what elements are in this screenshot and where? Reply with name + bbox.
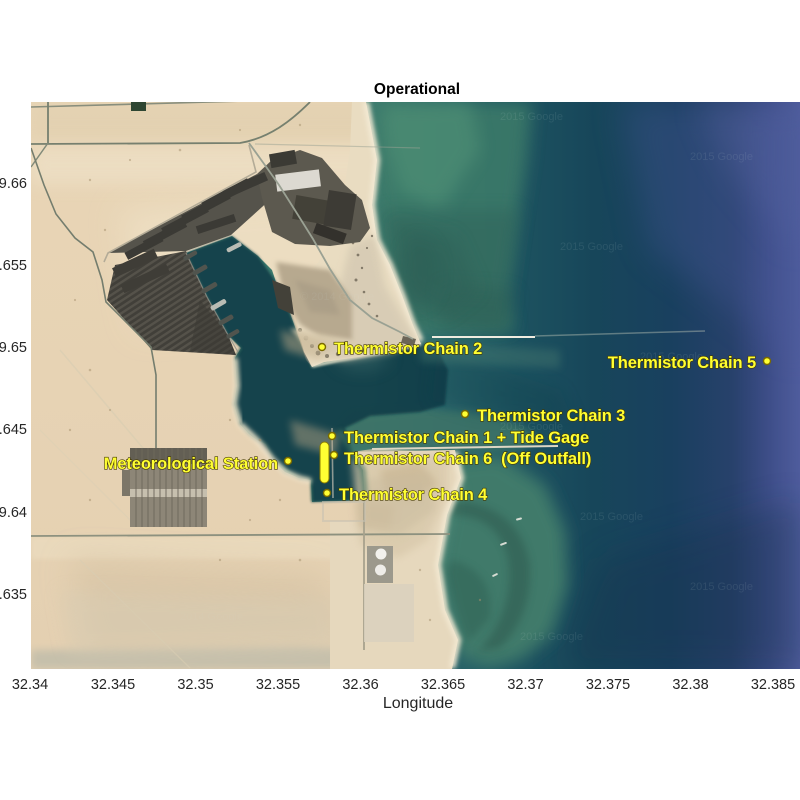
svg-text:2015 Google: 2015 Google bbox=[520, 631, 583, 643]
svg-text:Thermistor Chain 5: Thermistor Chain 5 bbox=[608, 354, 756, 372]
svg-text:32.365: 32.365 bbox=[421, 677, 465, 693]
svg-text:32.35: 32.35 bbox=[177, 677, 213, 693]
svg-text:29.64: 29.64 bbox=[0, 505, 27, 521]
svg-text:2015 Google: 2015 Google bbox=[580, 511, 643, 523]
svg-text:Longitude: Longitude bbox=[383, 695, 453, 712]
svg-text:32.385: 32.385 bbox=[751, 677, 795, 693]
svg-text:Thermistor Chain 6 (Off Outfa: Thermistor Chain 6 (Off Outfall) bbox=[344, 450, 591, 468]
svg-text:2015 Google: 2015 Google bbox=[690, 581, 753, 593]
svg-text:2014 Google: 2014 Google bbox=[180, 611, 243, 623]
svg-text:Thermistor Chain 3: Thermistor Chain 3 bbox=[477, 407, 625, 425]
svg-text:2015 Google: 2015 Google bbox=[560, 241, 623, 253]
svg-text:Operational: Operational bbox=[374, 81, 460, 98]
svg-text:29.635: 29.635 bbox=[0, 587, 27, 603]
svg-text:29.655: 29.655 bbox=[0, 258, 27, 274]
svg-text:Thermistor Chain 2: Thermistor Chain 2 bbox=[334, 340, 482, 358]
svg-text:29.645: 29.645 bbox=[0, 422, 27, 438]
svg-text:32.36: 32.36 bbox=[342, 677, 378, 693]
svg-text:32.345: 32.345 bbox=[91, 677, 135, 693]
svg-text:Thermistor Chain 4: Thermistor Chain 4 bbox=[339, 486, 488, 504]
svg-text:29.65: 29.65 bbox=[0, 340, 27, 356]
svg-text:32.355: 32.355 bbox=[256, 677, 300, 693]
svg-text:29.66: 29.66 bbox=[0, 176, 27, 192]
svg-text:2015 Google: 2015 Google bbox=[500, 111, 563, 123]
svg-text:32.375: 32.375 bbox=[586, 677, 630, 693]
svg-text:Thermistor Chain 1 + Tide Gage: Thermistor Chain 1 + Tide Gage bbox=[344, 429, 589, 447]
svg-text:32.38: 32.38 bbox=[672, 677, 708, 693]
svg-text:2015 Google: 2015 Google bbox=[690, 151, 753, 163]
svg-text:32.37: 32.37 bbox=[507, 677, 543, 693]
svg-text:32.34: 32.34 bbox=[12, 677, 48, 693]
svg-text:© 2014 Google: © 2014 Google bbox=[300, 291, 374, 303]
svg-text:Meteorological Station: Meteorological Station bbox=[104, 455, 278, 473]
